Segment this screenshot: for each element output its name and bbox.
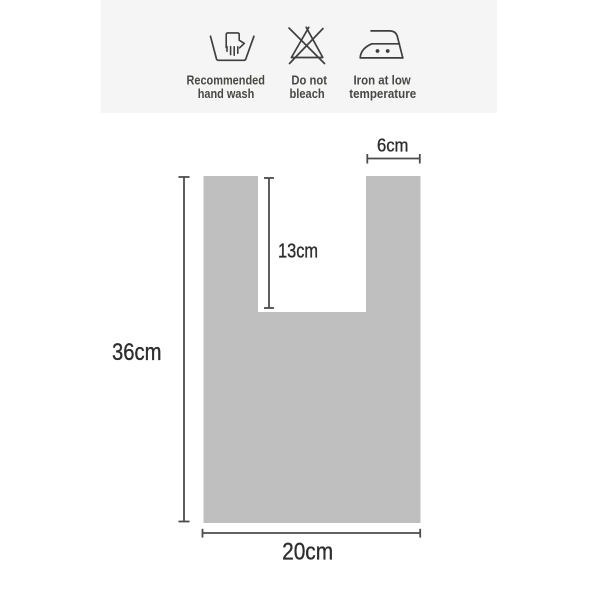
svg-text:36cm: 36cm xyxy=(112,339,162,366)
svg-text:Iron at low: Iron at low xyxy=(354,72,412,87)
svg-text:Recommended: Recommended xyxy=(187,72,265,87)
svg-text:bleach: bleach xyxy=(290,86,325,101)
svg-text:20cm: 20cm xyxy=(282,539,333,566)
svg-text:6cm: 6cm xyxy=(377,136,409,156)
svg-text:13cm: 13cm xyxy=(278,241,318,263)
svg-text:hand wash: hand wash xyxy=(198,86,255,101)
svg-text:Do not: Do not xyxy=(291,72,327,87)
svg-text:temperature: temperature xyxy=(349,86,416,101)
